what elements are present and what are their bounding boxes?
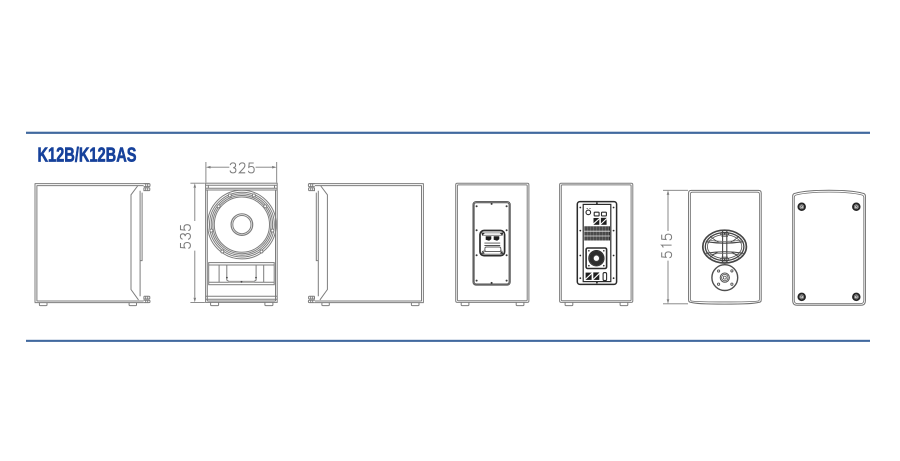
svg-text:K12B/K12BAS: K12B/K12BAS [37, 145, 136, 167]
